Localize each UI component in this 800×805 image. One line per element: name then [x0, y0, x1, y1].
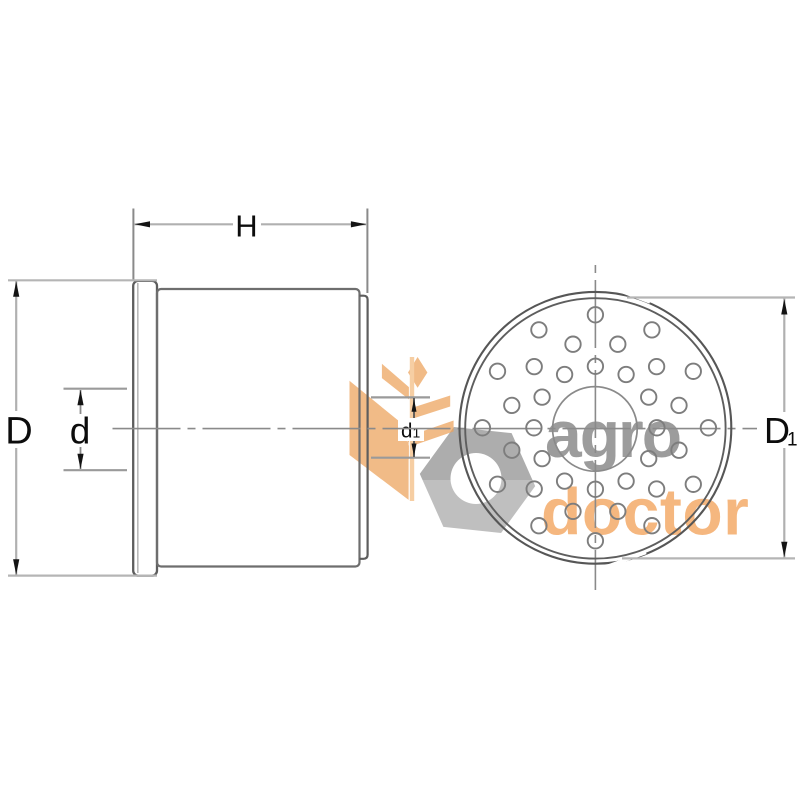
svg-text:D: D — [5, 411, 32, 453]
svg-text:H: H — [235, 209, 257, 244]
svg-text:d: d — [401, 420, 412, 443]
svg-text:1: 1 — [787, 430, 798, 451]
svg-text:1: 1 — [413, 425, 421, 441]
svg-text:d: d — [70, 411, 91, 452]
